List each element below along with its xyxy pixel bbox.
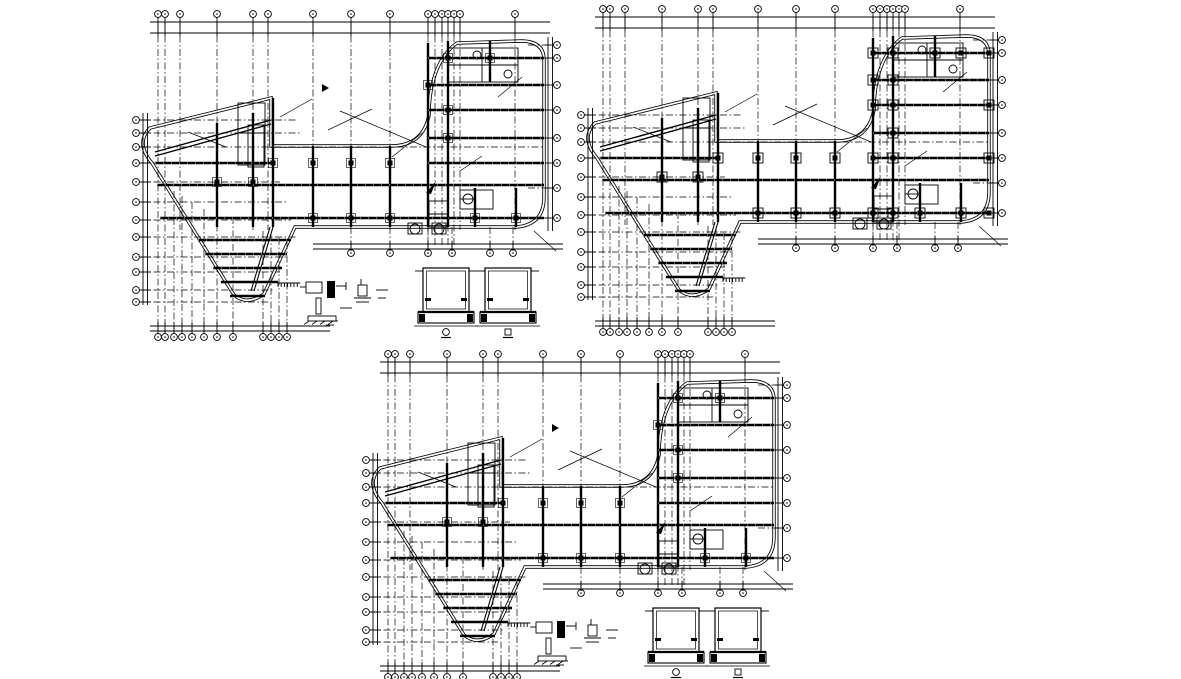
section-details xyxy=(414,268,540,338)
building-outline xyxy=(143,41,544,300)
beam-lines xyxy=(385,381,774,636)
hatch-ticks xyxy=(723,278,745,282)
cad-sheet xyxy=(0,0,1181,679)
beam-lines xyxy=(155,41,544,296)
cursor-arrow-icon xyxy=(322,84,329,92)
cursor-arrow-icon xyxy=(552,424,559,432)
framing-plan-bottom xyxy=(363,351,793,679)
foundation-detail xyxy=(300,279,388,325)
section-details xyxy=(644,608,770,678)
beam-lines xyxy=(600,36,989,291)
foundation-detail xyxy=(530,619,618,665)
framing-plan-top-right xyxy=(578,6,1008,336)
building-outline xyxy=(588,36,989,295)
framing-plan-top-left xyxy=(133,11,563,341)
structural-framing-drawing xyxy=(0,0,1181,679)
grid-bubbles xyxy=(578,6,1006,336)
building-outline xyxy=(373,381,774,640)
hatch-ticks xyxy=(278,283,300,287)
grid-bubbles xyxy=(133,11,561,341)
hatch-ticks xyxy=(508,623,530,627)
